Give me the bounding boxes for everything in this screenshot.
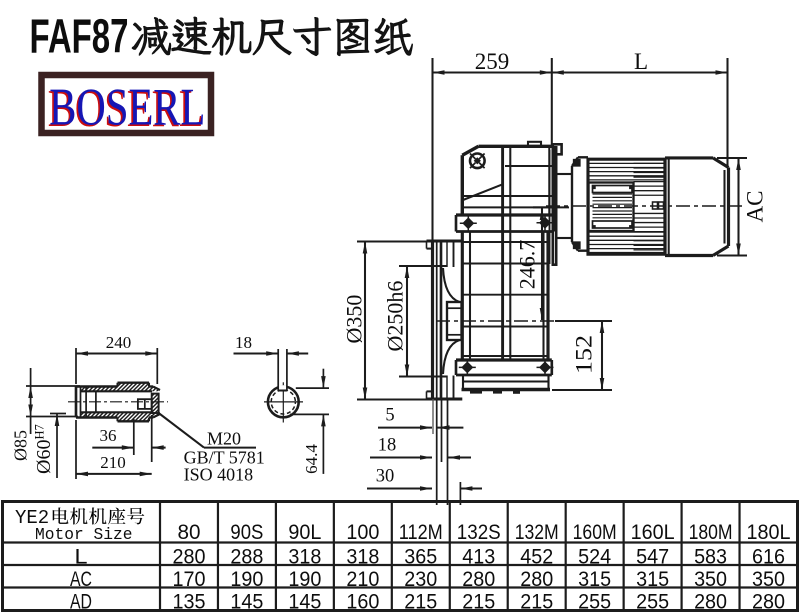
svg-text:18: 18 — [235, 333, 252, 352]
svg-text:210: 210 — [346, 567, 379, 591]
svg-text:318: 318 — [288, 545, 321, 569]
svg-text:152: 152 — [572, 335, 597, 374]
svg-text:FAF87: FAF87 — [30, 10, 129, 64]
svg-text:5: 5 — [385, 406, 394, 426]
svg-text:259: 259 — [475, 49, 510, 74]
svg-text:318: 318 — [346, 545, 379, 569]
svg-text:452: 452 — [520, 545, 553, 569]
svg-text:215: 215 — [462, 590, 495, 614]
svg-text:350: 350 — [752, 567, 785, 591]
svg-text:365: 365 — [404, 545, 437, 569]
svg-text:246.7: 246.7 — [515, 240, 540, 290]
svg-text:240: 240 — [106, 333, 132, 352]
svg-text:M20: M20 — [207, 429, 241, 449]
svg-text:180M: 180M — [689, 520, 733, 544]
svg-text:L: L — [75, 545, 88, 569]
svg-text:Ø85: Ø85 — [11, 430, 31, 461]
svg-text:64.4: 64.4 — [302, 444, 321, 474]
svg-text:18: 18 — [378, 436, 397, 456]
svg-text:160: 160 — [346, 590, 379, 614]
svg-text:288: 288 — [230, 545, 263, 569]
svg-text:315: 315 — [578, 567, 611, 591]
svg-text:36: 36 — [100, 426, 117, 445]
svg-text:413: 413 — [462, 545, 495, 569]
svg-text:AC: AC — [70, 567, 92, 591]
svg-text:190: 190 — [288, 567, 321, 591]
svg-text:Ø350: Ø350 — [342, 295, 367, 344]
svg-text:145: 145 — [230, 590, 263, 614]
svg-text:Motor Size: Motor Size — [35, 526, 133, 545]
svg-text:230: 230 — [404, 567, 437, 591]
svg-text:350: 350 — [694, 567, 727, 591]
svg-text:583: 583 — [694, 545, 727, 569]
svg-text:L: L — [634, 49, 648, 74]
svg-text:215: 215 — [404, 590, 437, 614]
svg-text:524: 524 — [578, 545, 611, 569]
svg-text:BOSERL: BOSERL — [49, 79, 205, 137]
svg-text:280: 280 — [462, 567, 495, 591]
svg-text:145: 145 — [288, 590, 321, 614]
svg-text:210: 210 — [100, 453, 126, 472]
svg-text:135: 135 — [172, 590, 205, 614]
svg-text:Ø250h6: Ø250h6 — [383, 281, 408, 352]
svg-text:616: 616 — [752, 545, 785, 569]
svg-text:160L: 160L — [631, 520, 675, 544]
svg-text:160M: 160M — [573, 520, 617, 544]
svg-text:280: 280 — [752, 590, 785, 614]
svg-text:190: 190 — [230, 567, 263, 591]
svg-text:170: 170 — [172, 567, 205, 591]
svg-text:215: 215 — [520, 590, 553, 614]
svg-text:180L: 180L — [747, 520, 791, 544]
svg-text:AD: AD — [70, 590, 92, 614]
svg-text:112M: 112M — [399, 520, 443, 544]
svg-text:255: 255 — [636, 590, 669, 614]
svg-text:255: 255 — [578, 590, 611, 614]
svg-text:90S: 90S — [230, 520, 263, 544]
svg-text:100: 100 — [346, 520, 379, 544]
svg-text:80: 80 — [177, 520, 200, 544]
svg-text:132M: 132M — [515, 520, 559, 544]
svg-text:280: 280 — [520, 567, 553, 591]
svg-text:ISO 4018: ISO 4018 — [184, 465, 254, 485]
svg-text:280: 280 — [694, 590, 727, 614]
svg-text:Ø60H7: Ø60H7 — [33, 424, 56, 474]
svg-text:547: 547 — [636, 545, 669, 569]
svg-text:315: 315 — [636, 567, 669, 591]
svg-text:AC: AC — [743, 191, 768, 223]
svg-text:132S: 132S — [457, 520, 501, 544]
svg-text:280: 280 — [172, 545, 205, 569]
svg-text:30: 30 — [376, 467, 395, 487]
svg-text:90L: 90L — [288, 520, 321, 544]
